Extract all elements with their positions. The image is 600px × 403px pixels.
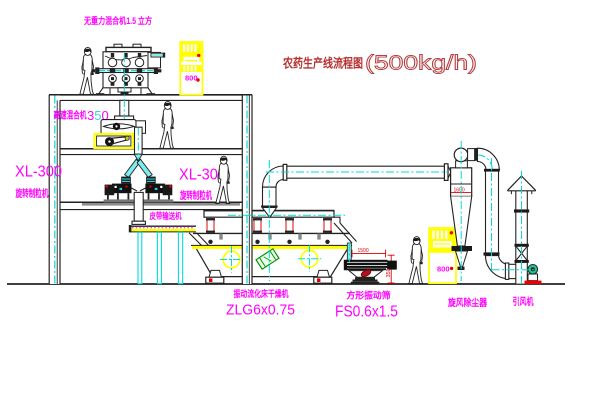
svg-text:350: 350 — [386, 268, 392, 277]
svg-text:皮带输送机: 皮带输送机 — [149, 211, 182, 221]
svg-text:FS0.6x1.5: FS0.6x1.5 — [335, 304, 398, 321]
svg-text:旋风除尘器: 旋风除尘器 — [447, 297, 487, 309]
svg-text:农药生产线流程图: 农药生产线流程图 — [282, 56, 363, 71]
svg-text:方形振动筛: 方形振动筛 — [347, 290, 391, 301]
svg-text:旋转制粒机: 旋转制粒机 — [15, 187, 49, 200]
svg-text:1500: 1500 — [358, 248, 369, 254]
svg-text:(500kg/h): (500kg/h) — [365, 52, 477, 75]
svg-text:800: 800 — [437, 265, 450, 274]
svg-text:高速混合机: 高速混合机 — [54, 110, 87, 122]
svg-text:ZLG6x0.75: ZLG6x0.75 — [226, 302, 295, 319]
svg-text:XL-300: XL-300 — [15, 164, 62, 181]
svg-text:旋转制粒机: 旋转制粒机 — [179, 189, 212, 202]
svg-text:引风机: 引风机 — [513, 296, 534, 308]
svg-text:振动流化床干燥机: 振动流化床干燥机 — [234, 288, 289, 299]
svg-text:无重力混合机1.5 立方: 无重力混合机1.5 立方 — [83, 15, 152, 26]
svg-text:800: 800 — [185, 74, 198, 83]
